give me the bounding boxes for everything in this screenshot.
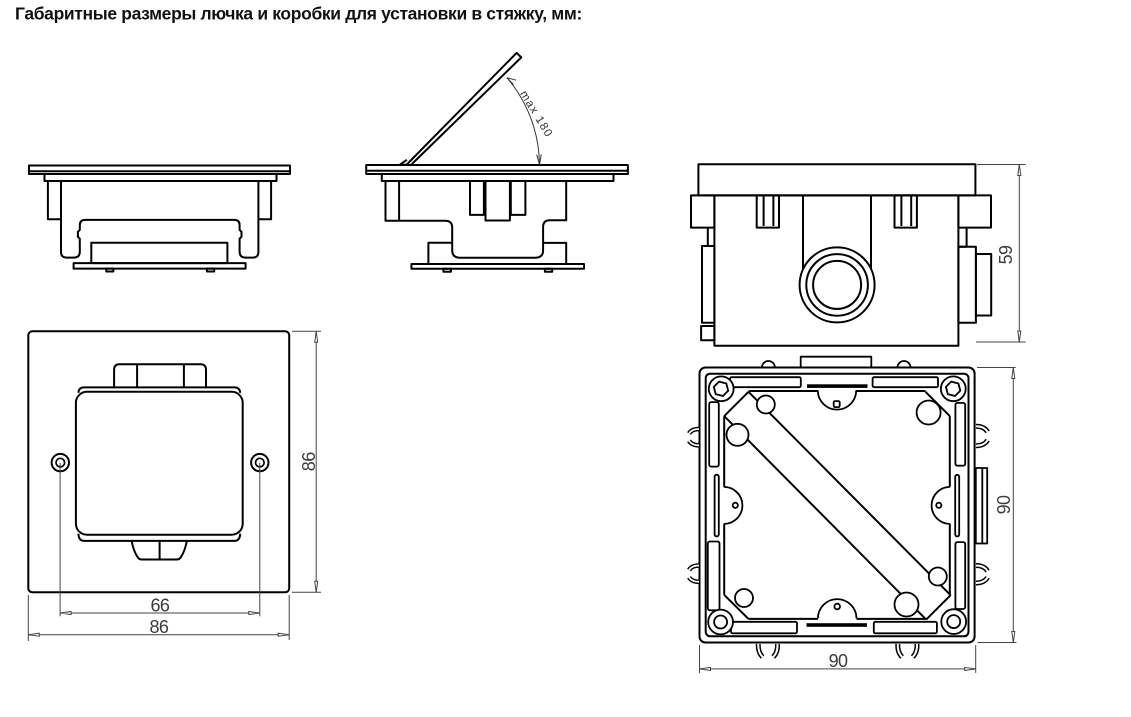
svg-text:Габаритные размеры лючка и кор: Габаритные размеры лючка и коробки для у… <box>15 4 582 24</box>
svg-text:max 180: max 180 <box>517 89 554 140</box>
svg-text:86: 86 <box>149 617 168 637</box>
svg-text:90: 90 <box>994 495 1014 514</box>
svg-text:59: 59 <box>996 245 1016 264</box>
svg-text:90: 90 <box>829 651 848 671</box>
svg-text:66: 66 <box>150 596 169 616</box>
svg-text:86: 86 <box>299 452 319 471</box>
